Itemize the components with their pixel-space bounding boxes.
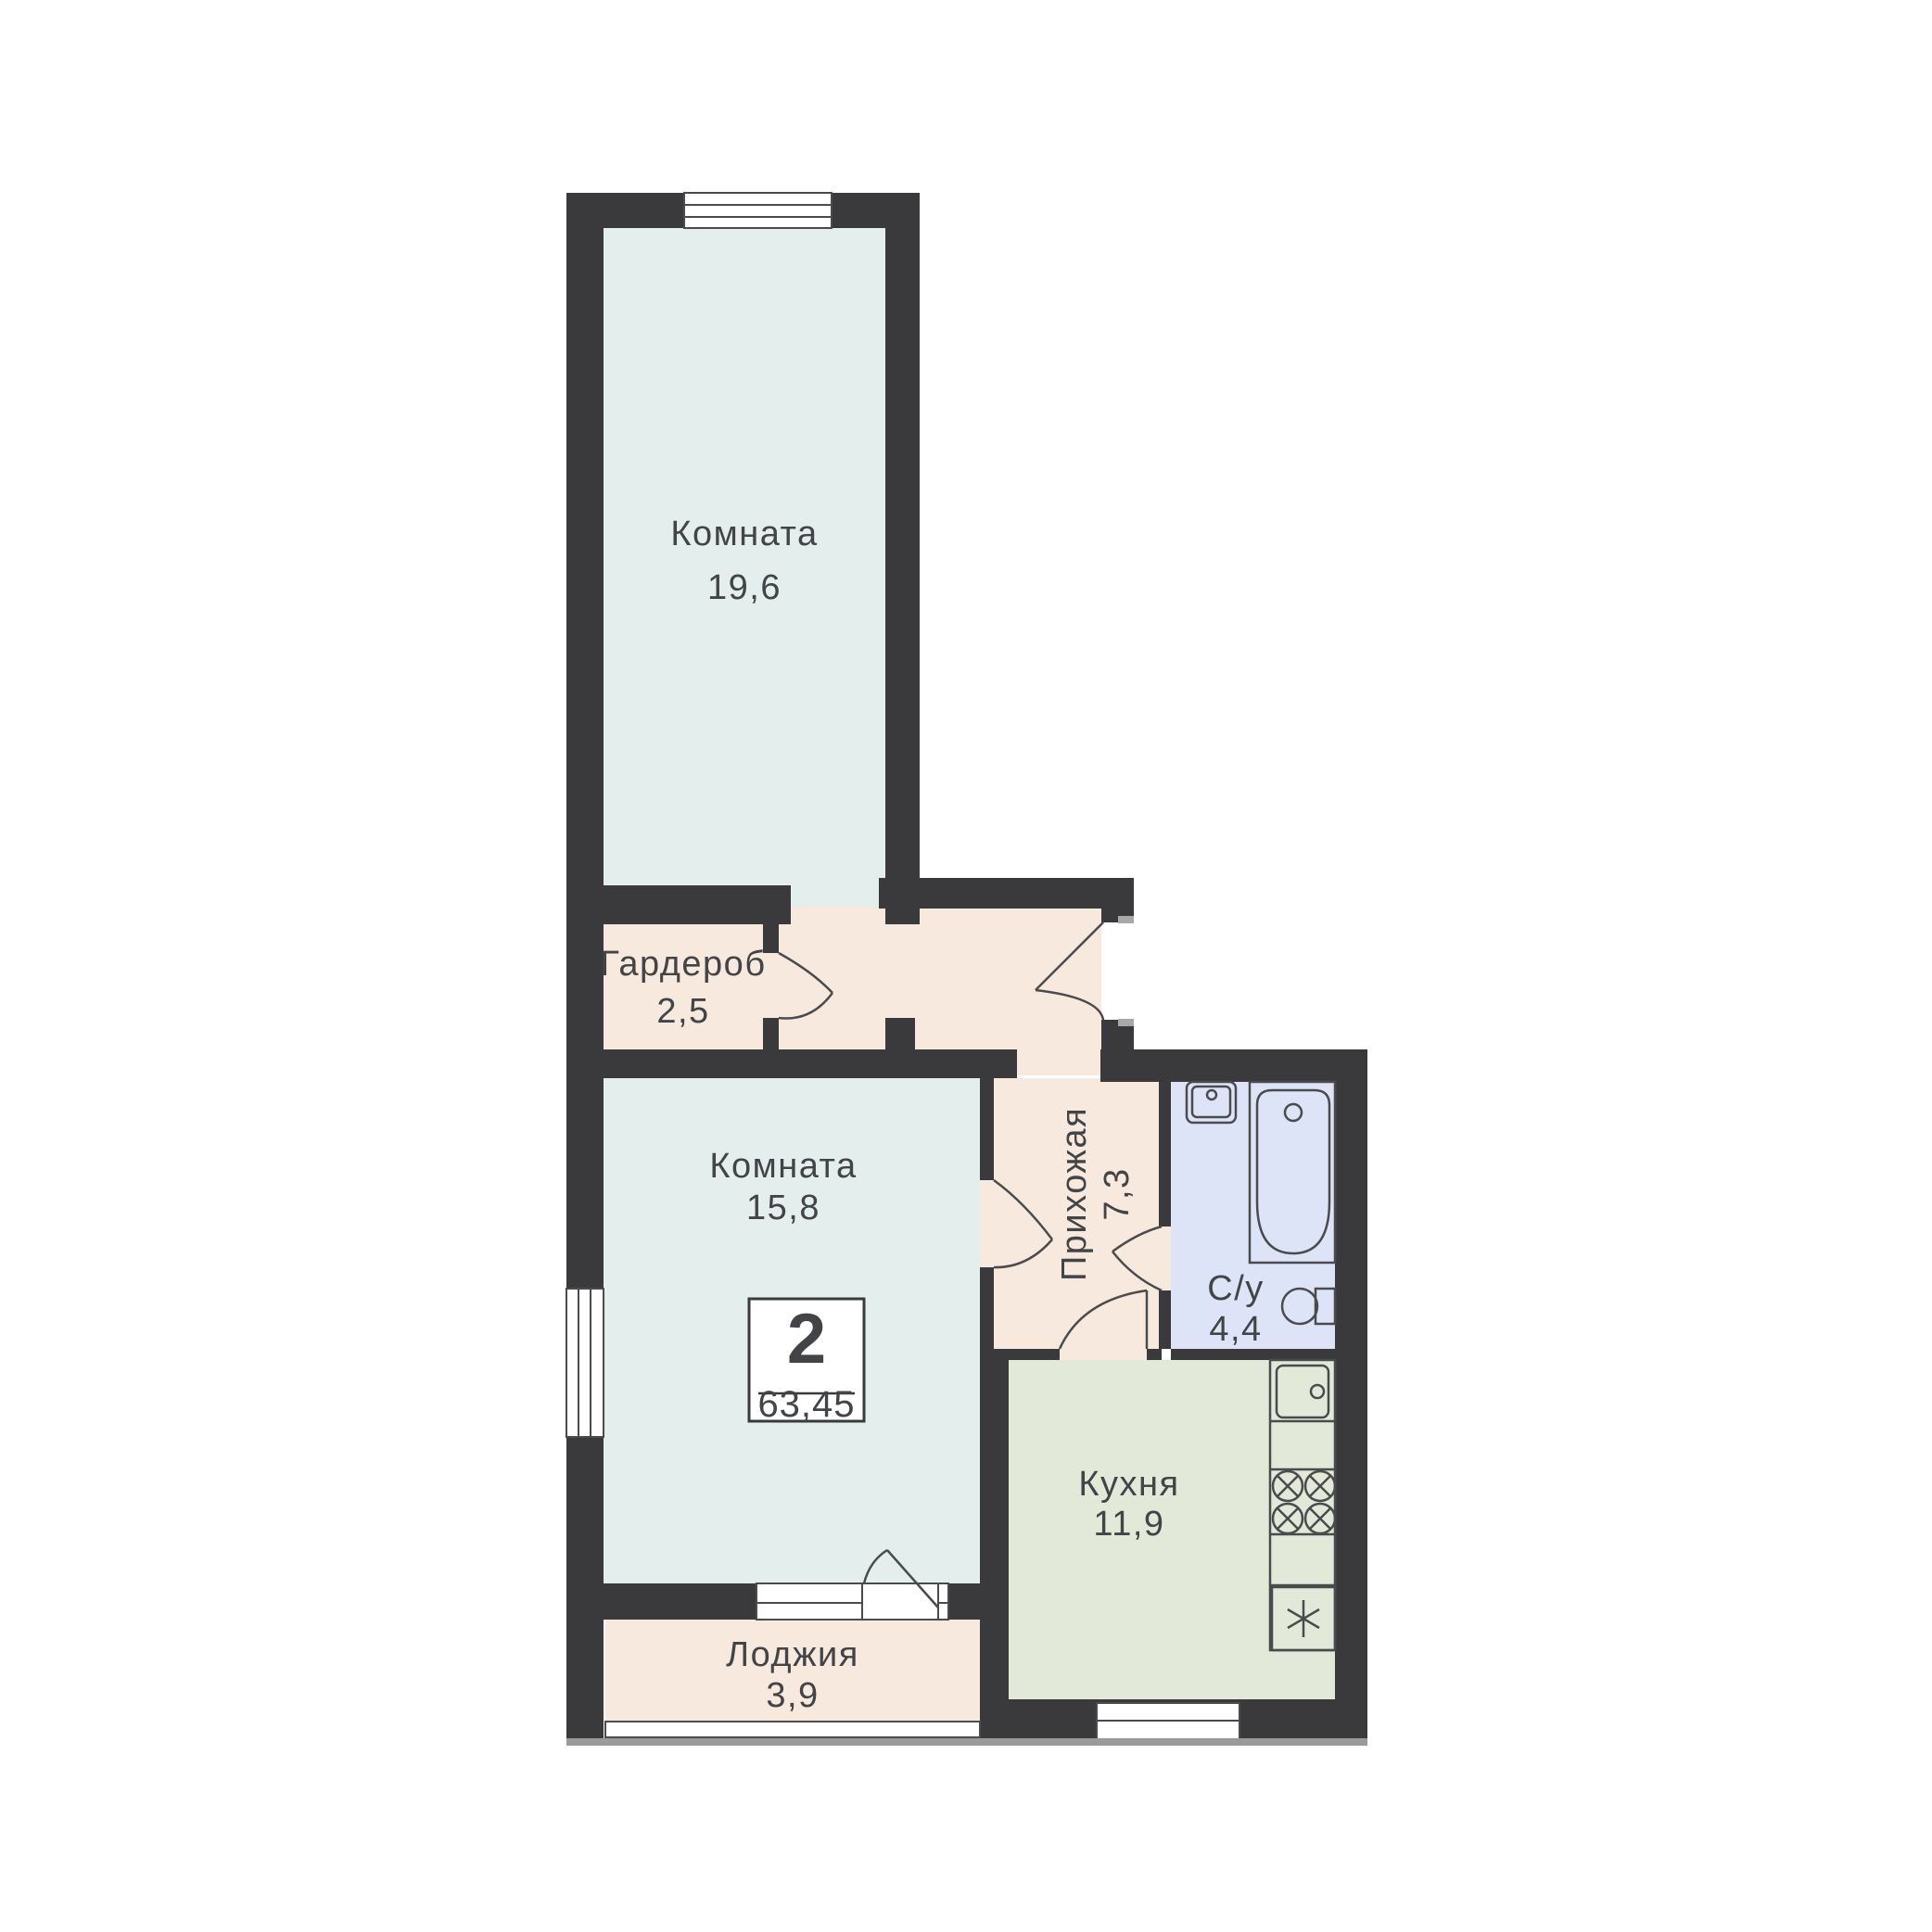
wall-right bbox=[1335, 1049, 1367, 1743]
room15-door-gap bbox=[980, 1180, 994, 1267]
kitchen-floor bbox=[1009, 1360, 1335, 1699]
bathroom-label: С/у bbox=[1207, 1269, 1265, 1308]
window-kitchen-icon bbox=[1097, 1703, 1239, 1739]
wall-bathroom-left-lower bbox=[1159, 1290, 1171, 1349]
wall-room19-bottom bbox=[604, 885, 791, 924]
hallway-corridor-floor bbox=[779, 907, 1101, 1049]
wall-pillar bbox=[885, 1018, 915, 1049]
kitchen-label: Кухня bbox=[1078, 1465, 1179, 1504]
room19-area: 19,6 bbox=[707, 568, 782, 607]
kitchen-door-gap bbox=[1060, 1349, 1147, 1360]
badge-total-area: 63,45 bbox=[757, 1384, 855, 1425]
wall-corridor-bottom bbox=[604, 1049, 1017, 1078]
hallway-label: Прихожая bbox=[1055, 1107, 1094, 1281]
room19-label: Комната bbox=[670, 515, 818, 553]
room-living-19-floor bbox=[604, 228, 885, 885]
entry-jamb-bottom bbox=[1118, 1019, 1134, 1026]
badge-rooms-count: 2 bbox=[787, 1300, 826, 1379]
wall-bathroom-top bbox=[1100, 1049, 1367, 1082]
wall-bathroom-left-upper bbox=[1159, 1082, 1171, 1227]
wall-room15-bottom bbox=[604, 1583, 756, 1620]
wall-bathroom-bottom bbox=[1171, 1349, 1335, 1360]
room15-label: Комната bbox=[709, 1147, 857, 1186]
loggia-label: Лоджия bbox=[726, 1635, 859, 1674]
window-room15-icon bbox=[566, 1289, 604, 1437]
wardrobe-area: 2,5 bbox=[656, 992, 709, 1031]
floor-plan-svg: Комната 19,6 Гардероб 2,5 Комната 15,8 П… bbox=[0, 0, 1932, 1932]
bathroom-area: 4,4 bbox=[1209, 1310, 1262, 1349]
apartment-badge: 2 63,45 bbox=[749, 1299, 864, 1425]
wall-entry-top bbox=[879, 878, 1134, 909]
room15-area: 15,8 bbox=[746, 1188, 820, 1227]
wall-room19-right bbox=[885, 193, 920, 924]
window-room19-icon bbox=[684, 193, 832, 228]
wall-left bbox=[566, 193, 604, 1743]
entry-jamb-top bbox=[1118, 916, 1134, 923]
wall-kitchen-left bbox=[980, 1349, 1009, 1743]
room-living-19-doorway-floor bbox=[791, 885, 879, 907]
loggia-area: 3,9 bbox=[766, 1676, 819, 1715]
wall-wardrobe-right-lower bbox=[763, 1018, 779, 1049]
kitchen-area: 11,9 bbox=[1093, 1505, 1164, 1544]
floor-plan: Комната 19,6 Гардероб 2,5 Комната 15,8 П… bbox=[0, 0, 1932, 1932]
window-balcony-icon bbox=[756, 1583, 948, 1620]
hallway-opening-floor bbox=[1017, 1049, 1100, 1075]
wall-hall-bottom-right bbox=[1147, 1349, 1162, 1360]
bathroom-door-gap bbox=[1159, 1227, 1171, 1290]
wall-balcony-right bbox=[948, 1583, 1009, 1620]
hallway-area: 7,3 bbox=[1098, 1167, 1137, 1220]
wardrobe-label: Гардероб bbox=[600, 945, 766, 984]
